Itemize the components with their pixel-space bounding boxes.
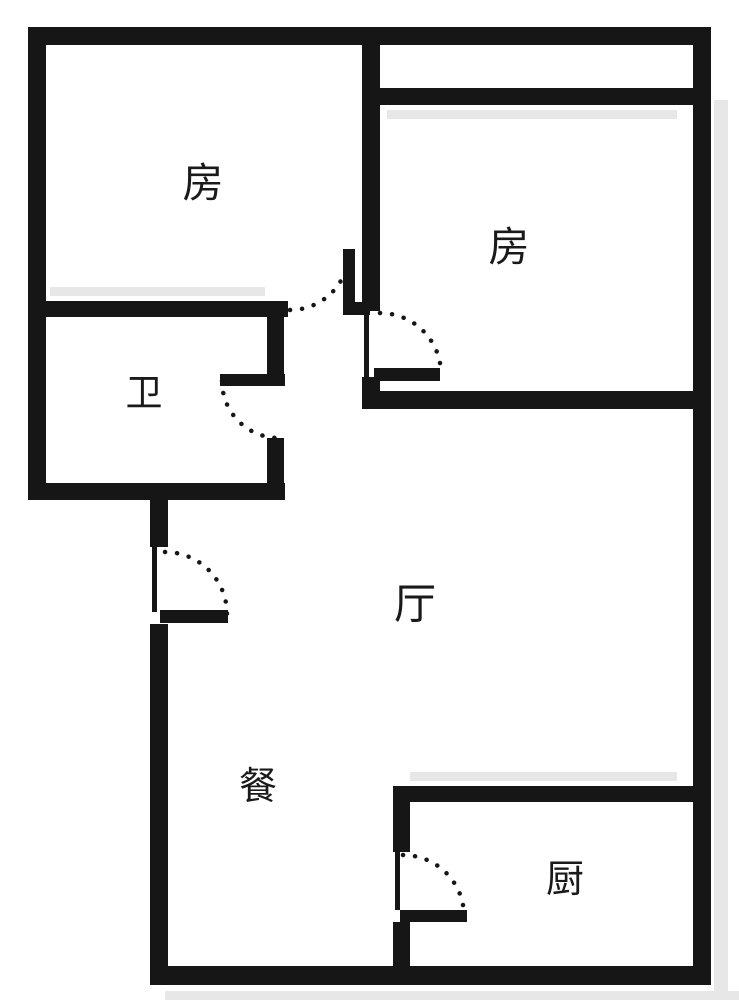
shadow-bedroom-right: [387, 110, 677, 119]
bedroom-right-top-wall: [375, 88, 697, 105]
bathroom-bottom-wall: [28, 483, 285, 500]
bathroom-right-wall-upper: [267, 317, 284, 375]
kitchen-door-arc: [403, 855, 464, 916]
floor-plan-canvas: 房房卫厅餐厨: [0, 0, 739, 1000]
room-label-bathroom: 卫: [126, 373, 163, 414]
kitchen-door-jamb: [395, 852, 400, 910]
kitchen-top-wall: [393, 786, 711, 802]
room-label-bedroom-right: 房: [489, 224, 530, 270]
bedroom-right-door-jamb: [364, 313, 369, 377]
room-label-bedroom-left: 房: [183, 160, 224, 206]
outer-wall-right: [693, 27, 711, 985]
outer-wall-bottom: [150, 966, 711, 985]
bathroom-door-arc: [222, 381, 279, 438]
bedroom-right-bottom-wall: [362, 391, 711, 409]
kitchen-left-wall-lower: [393, 922, 410, 968]
floor-plan-page: 房房卫厅餐厨: [0, 0, 739, 1000]
walls-layer: [28, 27, 711, 985]
shadow-right-wall: [714, 100, 728, 991]
entry-door-jamb: [152, 547, 157, 612]
bathroom-top-wall: [28, 301, 288, 317]
kitchen-left-wall-upper: [393, 802, 410, 852]
kitchen-door-leaf: [400, 910, 467, 922]
room-label-kitchen: 厨: [546, 859, 584, 901]
bathroom-door-leaf: [220, 374, 285, 386]
shadow-kitchen-top: [410, 772, 677, 781]
shadow-bathroom-top: [50, 287, 265, 296]
entry-door-arc: [165, 552, 227, 614]
bedroom-right-door-arc: [380, 313, 441, 374]
room-label-dining: 餐: [239, 766, 277, 808]
hall-left-wall-lower: [150, 624, 168, 968]
divider-wall-upper: [362, 27, 380, 311]
outer-wall-left: [28, 27, 46, 500]
bedroom-right-door-leaf: [374, 368, 440, 381]
bedroom-left-door-arc: [290, 251, 349, 310]
entry-door-leaf: [160, 610, 228, 623]
room-label-living-room: 厅: [394, 581, 436, 628]
shadow-bottom-wall: [165, 991, 739, 1000]
